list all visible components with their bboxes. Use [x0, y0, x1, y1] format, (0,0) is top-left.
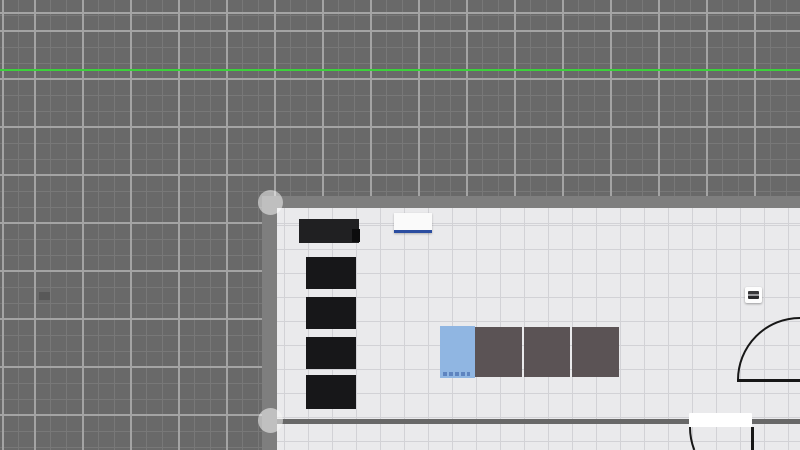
blue-side-table-dashes [443, 372, 470, 376]
shelf-unit-2[interactable] [306, 297, 356, 329]
outdoor-marker [39, 292, 50, 300]
floorplan-canvas[interactable] [0, 0, 800, 450]
cabinet[interactable] [299, 219, 359, 243]
shelf-unit-3[interactable] [306, 337, 356, 369]
blue-side-table[interactable] [440, 326, 475, 378]
outlet-icon-inner [748, 291, 759, 299]
sofa-seat-3[interactable] [572, 327, 619, 377]
shelf-unit-1[interactable] [306, 257, 356, 289]
sofa-seat-2[interactable] [524, 327, 571, 377]
wall-handle-bottom-corner[interactable] [258, 408, 283, 433]
cabinet-notch [352, 229, 360, 242]
wall-top[interactable] [262, 196, 800, 208]
reference-guide-line [0, 69, 800, 71]
shelf-unit-4[interactable] [306, 375, 356, 409]
sink-fixture[interactable] [394, 213, 432, 233]
wall-handle-top-corner[interactable] [258, 190, 283, 215]
sofa[interactable] [475, 327, 619, 377]
sofa-seat-1[interactable] [475, 327, 522, 377]
door-opening-gap[interactable] [689, 413, 752, 427]
